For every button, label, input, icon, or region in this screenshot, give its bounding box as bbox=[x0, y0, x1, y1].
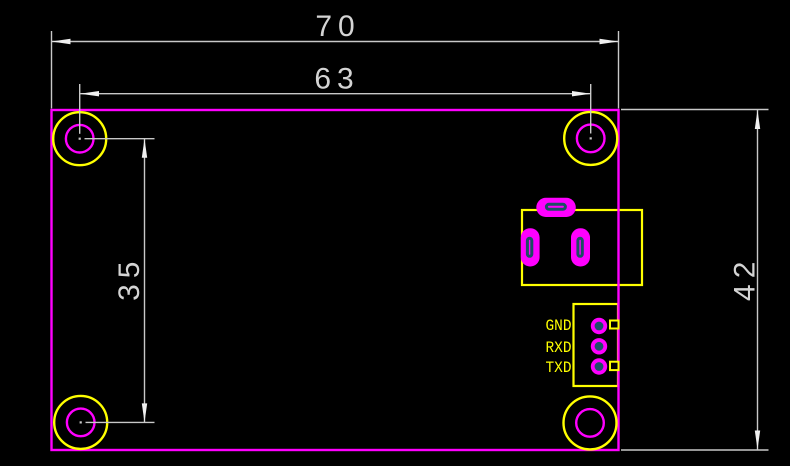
svg-text:TXD: TXD bbox=[546, 359, 572, 377]
svg-text:70: 70 bbox=[315, 10, 360, 43]
svg-text:63: 63 bbox=[314, 63, 359, 96]
svg-text:42: 42 bbox=[728, 256, 761, 301]
svg-text:GND: GND bbox=[546, 317, 572, 335]
svg-text:RXD: RXD bbox=[546, 339, 572, 357]
svg-text:35: 35 bbox=[113, 256, 146, 301]
